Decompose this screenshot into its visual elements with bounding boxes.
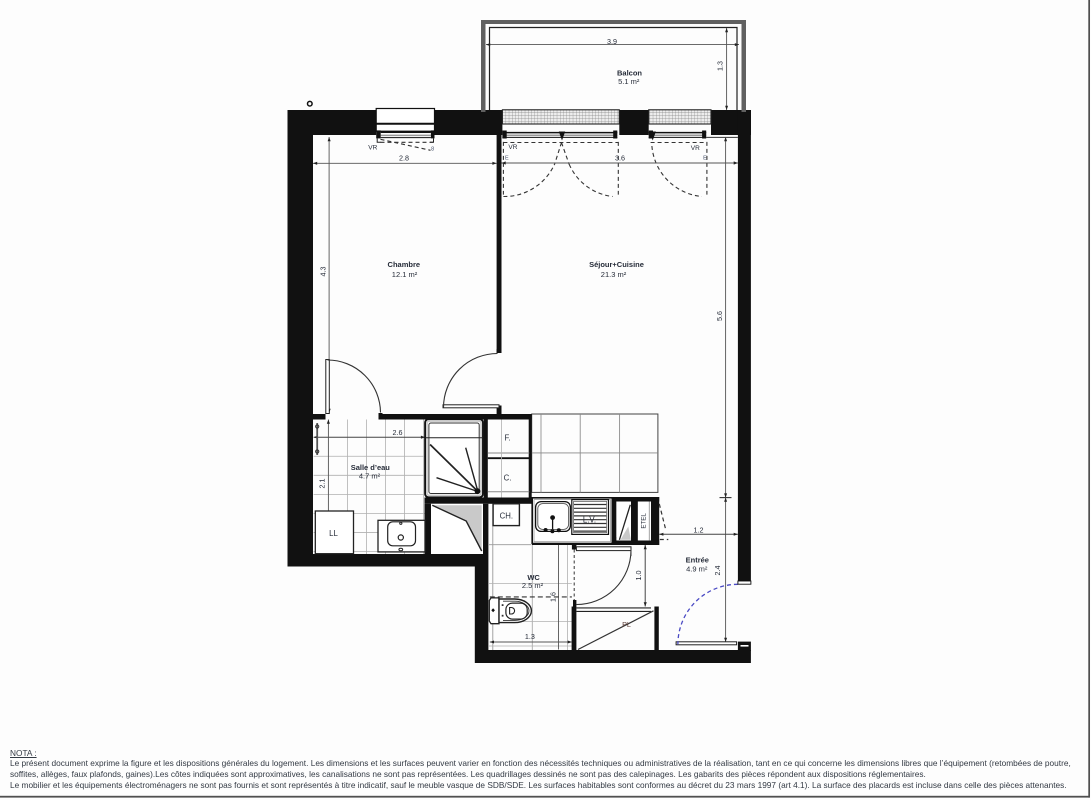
svg-text:E: E	[703, 155, 707, 161]
svg-text:4.3: 4.3	[318, 267, 327, 277]
svg-text:LL: LL	[329, 529, 338, 538]
svg-text:2.4: 2.4	[713, 566, 722, 576]
svg-text:8: 8	[431, 147, 434, 153]
svg-text:4.9 m²: 4.9 m²	[686, 564, 708, 573]
svg-text:3.6: 3.6	[615, 153, 625, 162]
svg-text:Séjour+Cuisine: Séjour+Cuisine	[589, 260, 644, 269]
svg-text:C.: C.	[504, 474, 512, 483]
svg-text:2.8: 2.8	[399, 154, 409, 163]
svg-text:ETEL: ETEL	[640, 513, 647, 529]
svg-text:5.1 m²: 5.1 m²	[618, 77, 640, 86]
svg-text:PL: PL	[622, 620, 631, 629]
svg-text:VR: VR	[508, 144, 517, 151]
svg-text:2.6: 2.6	[393, 428, 403, 437]
svg-text:1.2: 1.2	[694, 525, 704, 534]
svg-text:Chambre: Chambre	[388, 260, 421, 269]
svg-text:F.: F.	[504, 434, 510, 443]
svg-text:1.0: 1.0	[634, 571, 643, 581]
svg-text:VR: VR	[691, 145, 700, 152]
svg-text:1.3: 1.3	[525, 632, 535, 641]
svg-text:5.6: 5.6	[715, 311, 724, 321]
svg-text:2.5 m²: 2.5 m²	[522, 581, 544, 590]
svg-text:1.3: 1.3	[715, 61, 724, 71]
svg-text:3.9: 3.9	[607, 37, 617, 46]
svg-text:L.V.: L.V.	[583, 515, 596, 524]
svg-text:21.3 m²: 21.3 m²	[601, 270, 627, 279]
svg-text:VR: VR	[368, 145, 377, 152]
svg-text:4.7 m²: 4.7 m²	[359, 472, 381, 481]
svg-text:2.1: 2.1	[318, 479, 327, 489]
svg-text:E: E	[505, 155, 509, 161]
svg-text:12.1 m²: 12.1 m²	[392, 270, 418, 279]
svg-text:CH.: CH.	[500, 511, 513, 520]
svg-text:Entrée: Entrée	[686, 556, 709, 565]
